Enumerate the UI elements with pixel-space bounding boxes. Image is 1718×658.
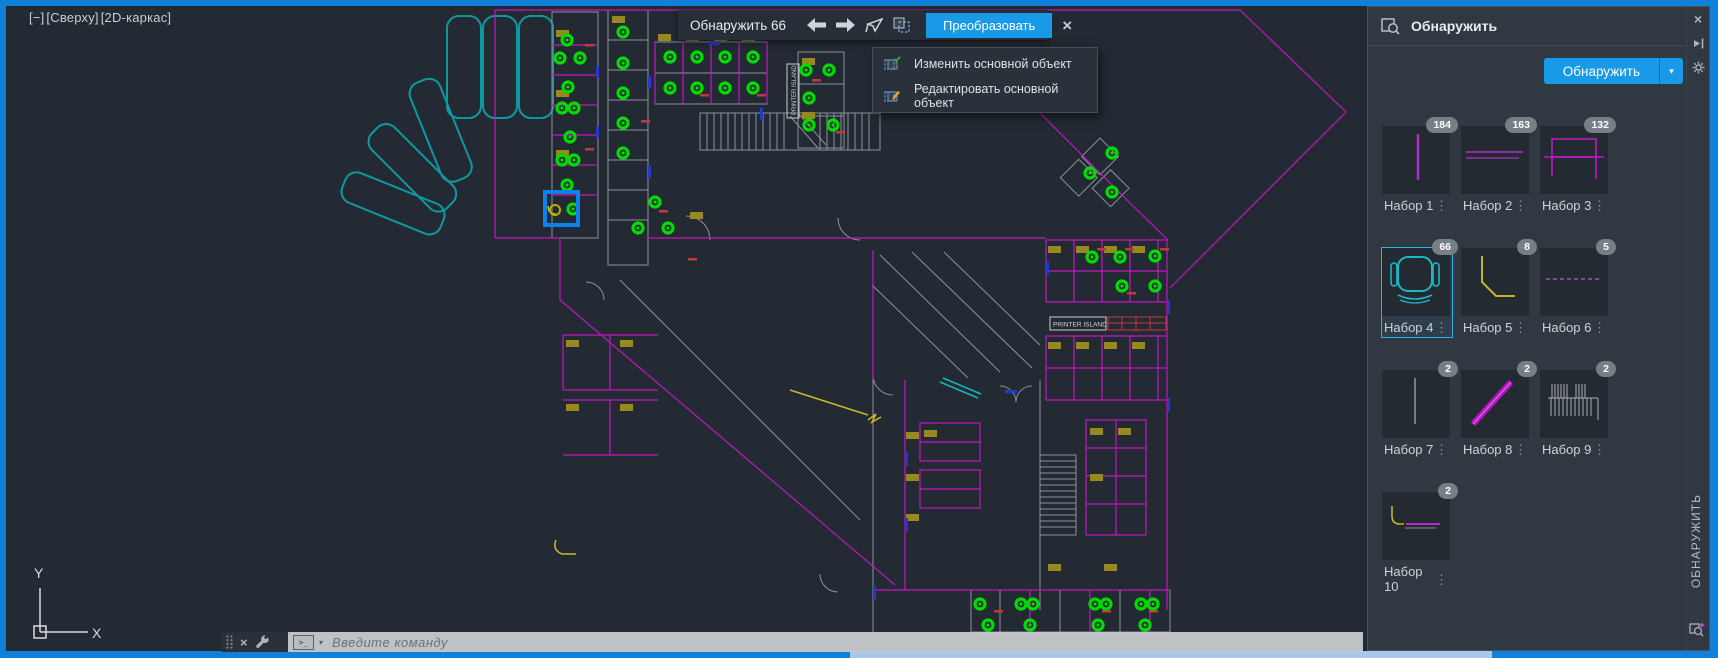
set-label: Набор 6	[1542, 320, 1593, 335]
set-label-row: Набор 1⋮	[1382, 194, 1452, 215]
viewport-view-control[interactable]: [Сверху]	[45, 10, 99, 25]
set-cell-9[interactable]: 2Набор 9⋮	[1539, 369, 1611, 460]
set-thumbnail[interactable]: 132	[1540, 126, 1608, 194]
palette-title-strip: × ОБНАРУЖИТЬ	[1686, 7, 1709, 650]
detect-palette: Обнаружить Обнаружить ▾ 184Набор 1⋮163На…	[1367, 6, 1710, 651]
set-glyph	[1540, 248, 1608, 316]
menu-item-label: Редактировать основной объект	[914, 82, 1097, 110]
set-thumbnail[interactable]: 2	[1540, 370, 1608, 438]
autocad-window: { "viewport": { "minimized": "[−]", "vie…	[0, 0, 1718, 658]
set-label: Набор 2	[1463, 198, 1514, 213]
model-space[interactable]: PRINTER ISLAND PRINTER ISLAND Y X [−][Св…	[6, 6, 1367, 651]
set-menu-button[interactable]: ⋮	[1435, 321, 1452, 334]
set-menu-button[interactable]: ⋮	[1514, 199, 1531, 212]
set-menu-button[interactable]: ⋮	[1593, 321, 1610, 334]
select-instances-button[interactable]	[893, 15, 911, 35]
set-label: Набор 8	[1463, 442, 1514, 457]
detected-chairs	[555, 27, 1160, 630]
menu-item-label: Изменить основной объект	[914, 57, 1072, 71]
teal-accents	[940, 378, 981, 398]
set-count-badge: 2	[1596, 361, 1616, 377]
set-count-badge: 132	[1584, 117, 1616, 133]
set-cell-5[interactable]: 8Набор 5⋮	[1460, 247, 1532, 338]
menu-item-change-base-object[interactable]: Изменить основной объект	[873, 48, 1097, 80]
command-input[interactable]: >_ ▾ Введите команду	[288, 632, 1363, 652]
set-cell-3[interactable]: 132Набор 3⋮	[1539, 125, 1611, 216]
set-label-row: Набор 9⋮	[1540, 438, 1610, 459]
command-dropdown-icon[interactable]: ▾	[319, 638, 323, 647]
set-thumbnail[interactable]: 184	[1382, 126, 1450, 194]
convert-context-menu: Изменить основной объект Редактировать о…	[872, 47, 1098, 113]
set-glyph	[1382, 370, 1450, 438]
set-label: Набор 9	[1542, 442, 1593, 457]
palette-detect-tab-icon[interactable]	[1689, 620, 1706, 642]
set-glyph	[1382, 492, 1450, 560]
drag-grip-icon[interactable]	[226, 635, 233, 649]
set-label-row: Набор 2⋮	[1461, 194, 1531, 215]
previous-instance-button[interactable]	[807, 15, 826, 35]
toolbar-close-icon[interactable]: ×	[1062, 17, 1072, 34]
detect-button[interactable]: Обнаружить	[1544, 58, 1659, 84]
set-label-row: Набор 10⋮	[1382, 560, 1452, 596]
set-count-badge: 163	[1505, 117, 1537, 133]
set-cell-8[interactable]: 2Набор 8⋮	[1460, 369, 1532, 460]
set-cell-10[interactable]: 2Набор 10⋮	[1381, 491, 1453, 597]
detect-palette-main: Обнаружить Обнаружить ▾ 184Набор 1⋮163На…	[1368, 7, 1687, 650]
command-line-dock: ×	[222, 632, 288, 652]
panel-title: Обнаружить	[1411, 18, 1497, 34]
printer-island-label: PRINTER ISLAND	[1053, 322, 1107, 329]
set-thumbnail[interactable]: 2	[1382, 492, 1450, 560]
set-cell-4[interactable]: 66Набор 4⋮	[1381, 247, 1453, 338]
set-label-row: Набор 3⋮	[1540, 194, 1610, 215]
set-label: Набор 4	[1384, 320, 1435, 335]
convert-button[interactable]: Преобразовать	[926, 13, 1052, 38]
palette-properties-gear-icon[interactable]	[1687, 55, 1709, 79]
set-glyph	[1382, 126, 1450, 194]
set-menu-button[interactable]: ⋮	[1514, 443, 1531, 456]
edit-object-icon	[884, 88, 901, 104]
set-count-badge: 2	[1517, 361, 1537, 377]
customize-wrench-icon[interactable]	[255, 635, 270, 649]
set-label-row: Набор 4⋮	[1382, 316, 1452, 337]
detect-dropdown-button[interactable]: ▾	[1659, 58, 1683, 84]
detect-action-split-button: Обнаружить ▾	[1544, 58, 1683, 84]
flag-instance-button[interactable]	[865, 15, 883, 35]
set-count-badge: 184	[1426, 117, 1458, 133]
set-glyph	[1461, 248, 1529, 316]
detection-sets-grid: 184Набор 1⋮163Набор 2⋮132Набор 3⋮66Набор…	[1381, 125, 1618, 597]
viewport-visual-style-control[interactable]: [2D-каркас]	[100, 10, 173, 25]
palette-autohide-pin-icon[interactable]	[1687, 31, 1709, 55]
yellow-details	[548, 206, 881, 554]
set-glyph	[1540, 370, 1608, 438]
set-cell-6[interactable]: 5Набор 6⋮	[1539, 247, 1611, 338]
set-thumbnail[interactable]: 2	[1461, 370, 1529, 438]
set-label-row: Набор 7⋮	[1382, 438, 1452, 459]
set-count-badge: 2	[1438, 361, 1458, 377]
set-menu-button[interactable]: ⋮	[1593, 443, 1610, 456]
set-label-row: Набор 6⋮	[1540, 316, 1610, 337]
copy-frames-icon	[893, 17, 911, 33]
detect-palette-header: Обнаружить	[1368, 7, 1687, 46]
command-prompt-icon[interactable]: >_	[293, 635, 314, 650]
set-label: Набор 3	[1542, 198, 1593, 213]
set-menu-button[interactable]: ⋮	[1593, 199, 1610, 212]
set-thumbnail[interactable]: 2	[1382, 370, 1450, 438]
command-close-icon[interactable]: ×	[240, 636, 248, 649]
set-count-badge: 2	[1438, 483, 1458, 499]
set-glyph	[1382, 248, 1450, 316]
set-thumbnail[interactable]: 163	[1461, 126, 1529, 194]
set-glyph	[1461, 126, 1529, 194]
set-count-badge: 8	[1517, 239, 1537, 255]
set-menu-button[interactable]: ⋮	[1435, 199, 1452, 212]
palette-vertical-tab[interactable]: ОБНАРУЖИТЬ	[1689, 494, 1707, 588]
detect-toolbar-title: Обнаружить 66	[690, 18, 786, 33]
ucs-x-label: X	[92, 625, 102, 641]
set-count-badge: 5	[1596, 239, 1616, 255]
bottom-border-highlight	[850, 651, 1492, 658]
ucs-y-label: Y	[34, 565, 44, 581]
set-menu-button[interactable]: ⋮	[1435, 443, 1452, 456]
set-label: Набор 5	[1463, 320, 1514, 335]
detect-toolbar: Обнаружить 66 Преобразовать ×	[678, 10, 1048, 40]
set-count-badge: 66	[1432, 239, 1458, 255]
detect-panel-icon	[1381, 17, 1400, 35]
menu-item-edit-base-object[interactable]: Редактировать основной объект	[873, 80, 1097, 112]
arrow-right-icon	[836, 18, 855, 32]
set-thumbnail[interactable]: 8	[1461, 248, 1529, 316]
set-label-row: Набор 5⋮	[1461, 316, 1531, 337]
set-thumbnail[interactable]: 66	[1382, 248, 1450, 316]
next-instance-button[interactable]	[836, 15, 855, 35]
set-label: Набор 1	[1384, 198, 1435, 213]
viewport-controls: [−][Сверху][2D-каркас]	[28, 10, 172, 25]
palette-close-icon[interactable]: ×	[1687, 7, 1709, 31]
floor-plan: PRINTER ISLAND PRINTER ISLAND Y X	[6, 6, 1367, 651]
set-glyph	[1461, 370, 1529, 438]
arrow-left-icon	[807, 18, 826, 32]
command-placeholder: Введите команду	[332, 635, 448, 650]
set-cell-2[interactable]: 163Набор 2⋮	[1460, 125, 1532, 216]
ucs-icon: Y X	[34, 565, 102, 641]
set-thumbnail[interactable]: 5	[1540, 248, 1608, 316]
set-label: Набор 7	[1384, 442, 1435, 457]
printer-island-vertical-label: PRINTER ISLAND	[792, 65, 798, 115]
set-cell-7[interactable]: 2Набор 7⋮	[1381, 369, 1453, 460]
set-cell-1[interactable]: 184Набор 1⋮	[1381, 125, 1453, 216]
flag-icon	[865, 18, 883, 33]
viewport-menu-control[interactable]: [−]	[28, 10, 45, 25]
set-menu-button[interactable]: ⋮	[1435, 573, 1452, 586]
change-object-icon	[884, 56, 901, 72]
set-label: Набор 10	[1384, 564, 1435, 594]
set-label-row: Набор 8⋮	[1461, 438, 1531, 459]
canopy-structures	[338, 16, 553, 238]
set-glyph	[1540, 126, 1608, 194]
set-menu-button[interactable]: ⋮	[1514, 321, 1531, 334]
